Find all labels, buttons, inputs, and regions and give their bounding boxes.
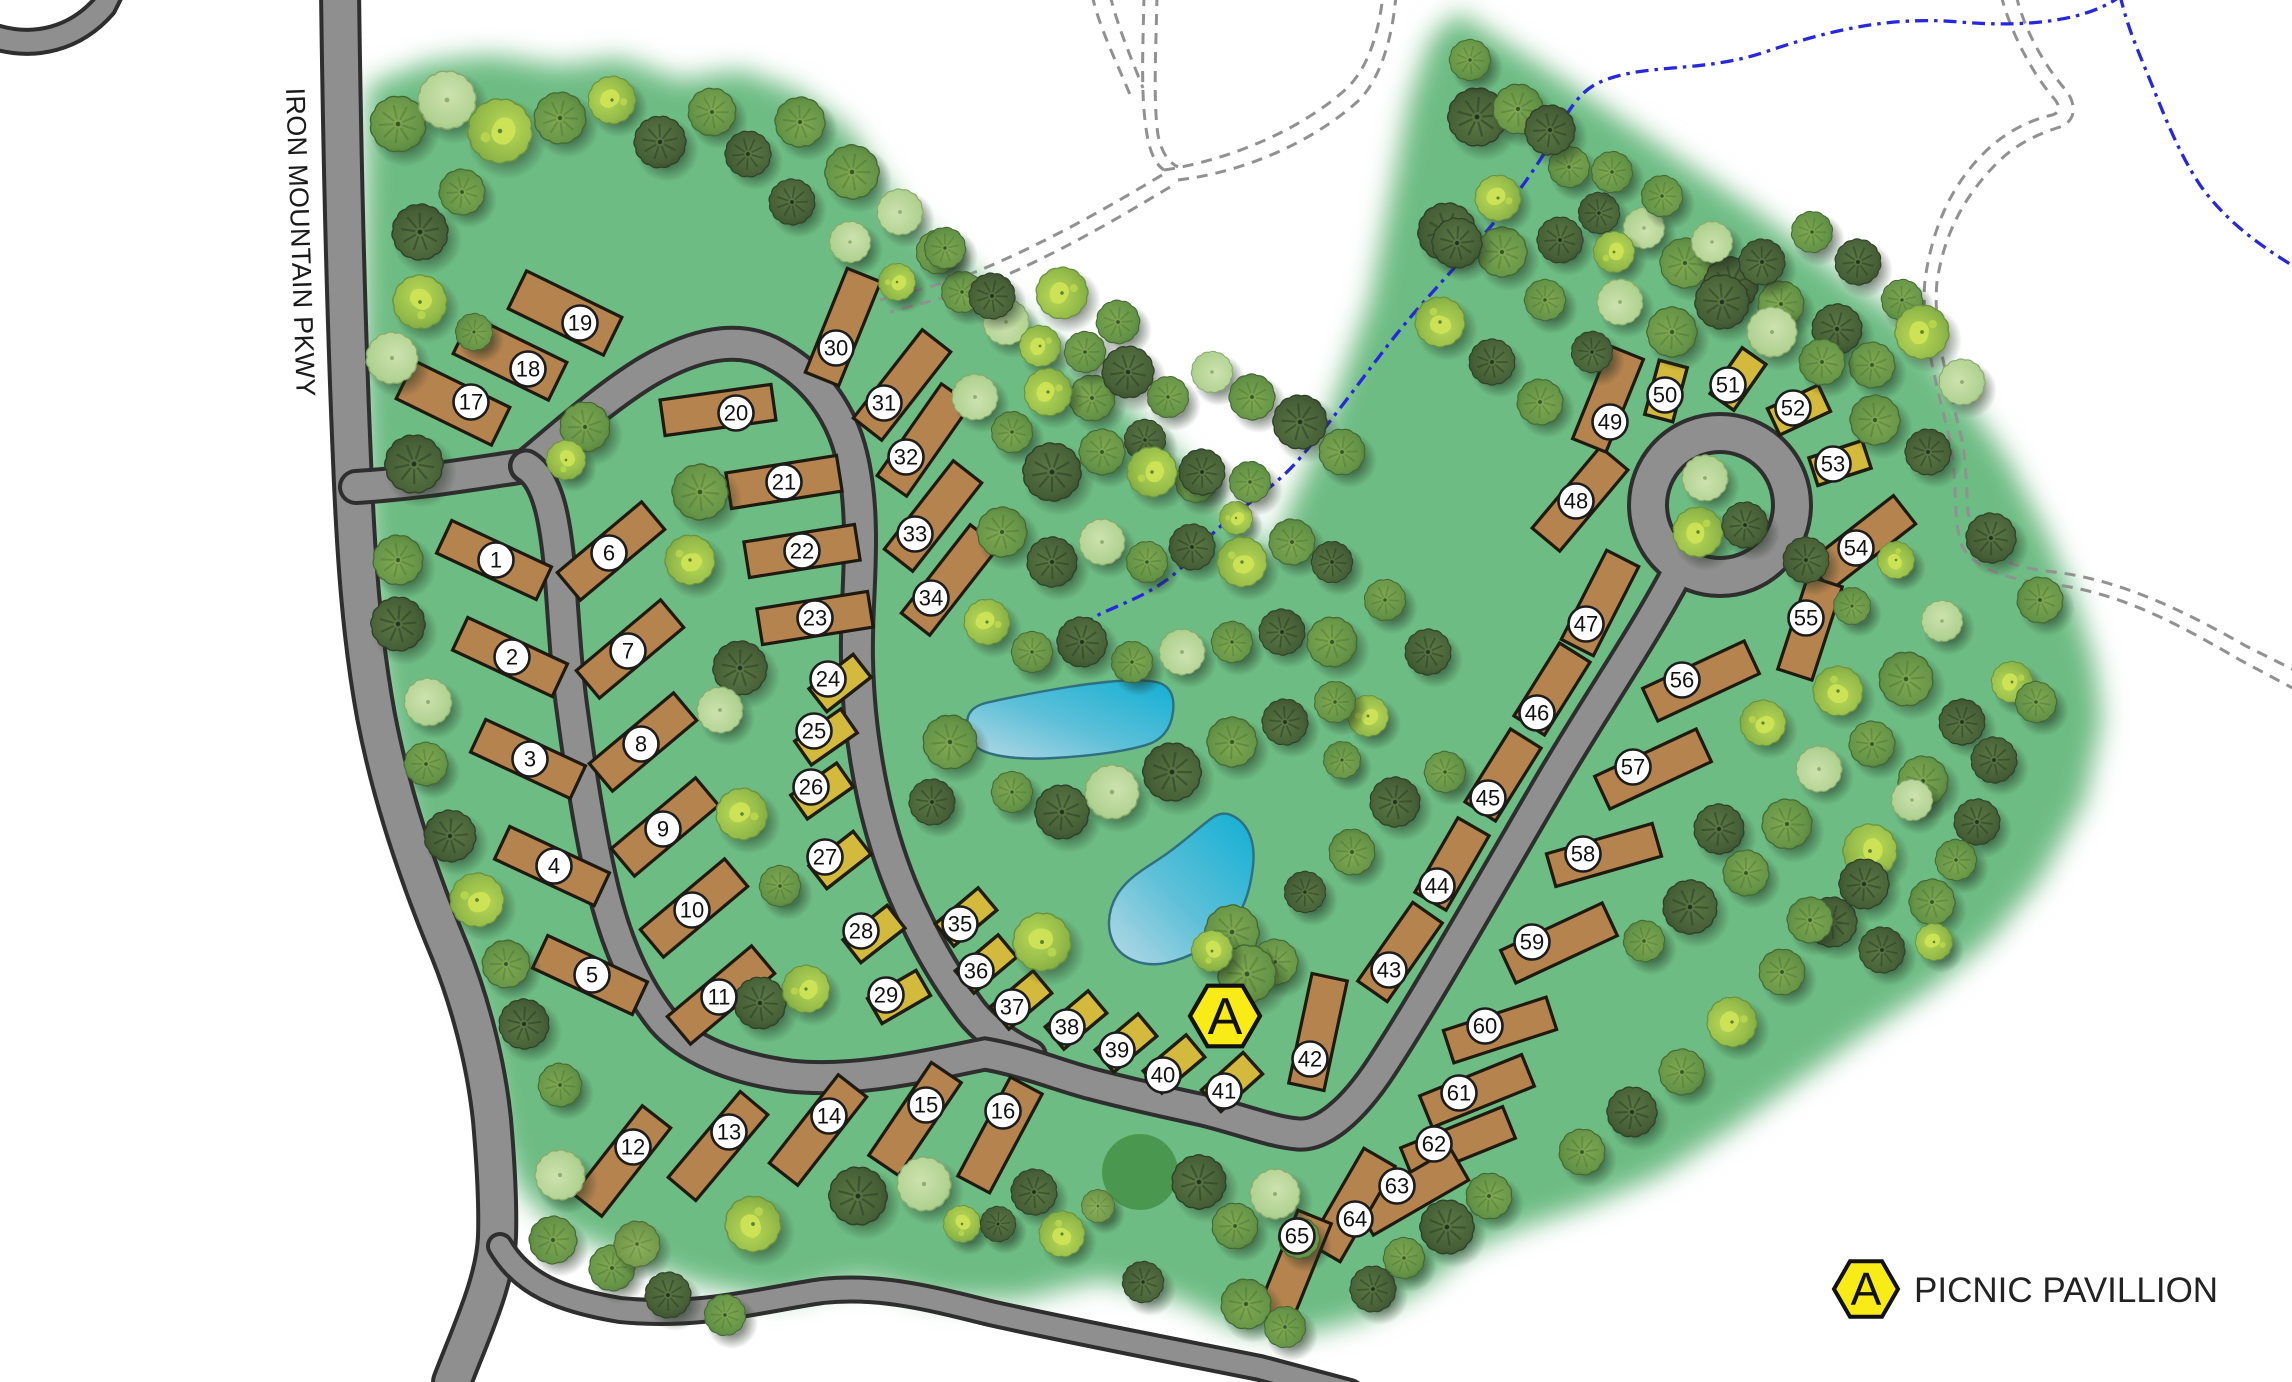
svg-text:64: 64: [1343, 1207, 1367, 1232]
svg-text:63: 63: [1385, 1174, 1409, 1199]
svg-text:26: 26: [799, 775, 823, 800]
svg-text:17: 17: [459, 390, 483, 415]
svg-text:23: 23: [803, 606, 827, 631]
svg-text:54: 54: [1844, 536, 1868, 561]
svg-text:11: 11: [708, 985, 731, 1010]
svg-text:33: 33: [903, 522, 927, 547]
svg-text:55: 55: [1794, 606, 1818, 631]
svg-text:39: 39: [1105, 1038, 1129, 1063]
svg-text:38: 38: [1055, 1015, 1079, 1040]
svg-text:32: 32: [894, 445, 918, 470]
svg-text:41: 41: [1212, 1079, 1236, 1104]
svg-text:24: 24: [816, 667, 840, 692]
svg-text:49: 49: [1598, 410, 1622, 435]
svg-text:21: 21: [772, 470, 796, 495]
svg-text:22: 22: [790, 539, 814, 564]
svg-text:A: A: [1208, 988, 1243, 1046]
svg-text:3: 3: [524, 747, 536, 772]
svg-text:16: 16: [991, 1099, 1015, 1124]
svg-text:58: 58: [1571, 842, 1595, 867]
svg-text:7: 7: [622, 639, 634, 664]
svg-text:59: 59: [1520, 930, 1544, 955]
svg-text:18: 18: [516, 357, 540, 382]
svg-text:42: 42: [1298, 1047, 1322, 1072]
svg-text:40: 40: [1151, 1063, 1175, 1088]
svg-text:65: 65: [1285, 1224, 1309, 1249]
svg-text:1: 1: [490, 548, 502, 573]
svg-text:5: 5: [586, 963, 598, 988]
svg-text:60: 60: [1473, 1014, 1497, 1039]
svg-text:37: 37: [1000, 995, 1024, 1020]
svg-text:61: 61: [1447, 1081, 1471, 1106]
svg-text:20: 20: [724, 401, 748, 426]
svg-text:4: 4: [548, 854, 560, 879]
svg-text:46: 46: [1525, 701, 1549, 726]
svg-text:48: 48: [1564, 489, 1588, 514]
svg-text:51: 51: [1716, 373, 1740, 398]
svg-text:50: 50: [1653, 383, 1677, 408]
svg-text:6: 6: [603, 541, 615, 566]
svg-text:27: 27: [813, 845, 837, 870]
svg-text:62: 62: [1422, 1132, 1446, 1157]
svg-text:34: 34: [919, 586, 943, 611]
svg-text:52: 52: [1781, 396, 1805, 421]
svg-text:35: 35: [948, 912, 972, 937]
svg-text:15: 15: [914, 1093, 938, 1118]
svg-text:36: 36: [964, 959, 988, 984]
svg-text:PICNIC PAVILLION: PICNIC PAVILLION: [1914, 1271, 2218, 1310]
svg-text:10: 10: [680, 898, 704, 923]
svg-text:57: 57: [1621, 755, 1645, 780]
svg-text:47: 47: [1574, 612, 1598, 637]
svg-text:43: 43: [1377, 958, 1401, 983]
svg-text:9: 9: [657, 817, 669, 842]
svg-text:30: 30: [824, 336, 848, 361]
svg-text:A: A: [1851, 1263, 1882, 1315]
svg-text:19: 19: [568, 311, 592, 336]
svg-text:8: 8: [635, 732, 647, 757]
svg-text:53: 53: [1821, 452, 1845, 477]
svg-text:45: 45: [1476, 786, 1500, 811]
svg-text:12: 12: [621, 1135, 645, 1160]
svg-text:44: 44: [1425, 874, 1449, 899]
svg-text:13: 13: [717, 1120, 741, 1145]
svg-text:29: 29: [874, 983, 898, 1008]
svg-text:2: 2: [506, 645, 518, 670]
svg-text:28: 28: [849, 919, 873, 944]
svg-text:56: 56: [1670, 668, 1694, 693]
svg-text:14: 14: [817, 1104, 841, 1129]
svg-text:31: 31: [872, 391, 896, 416]
svg-text:25: 25: [802, 719, 826, 744]
